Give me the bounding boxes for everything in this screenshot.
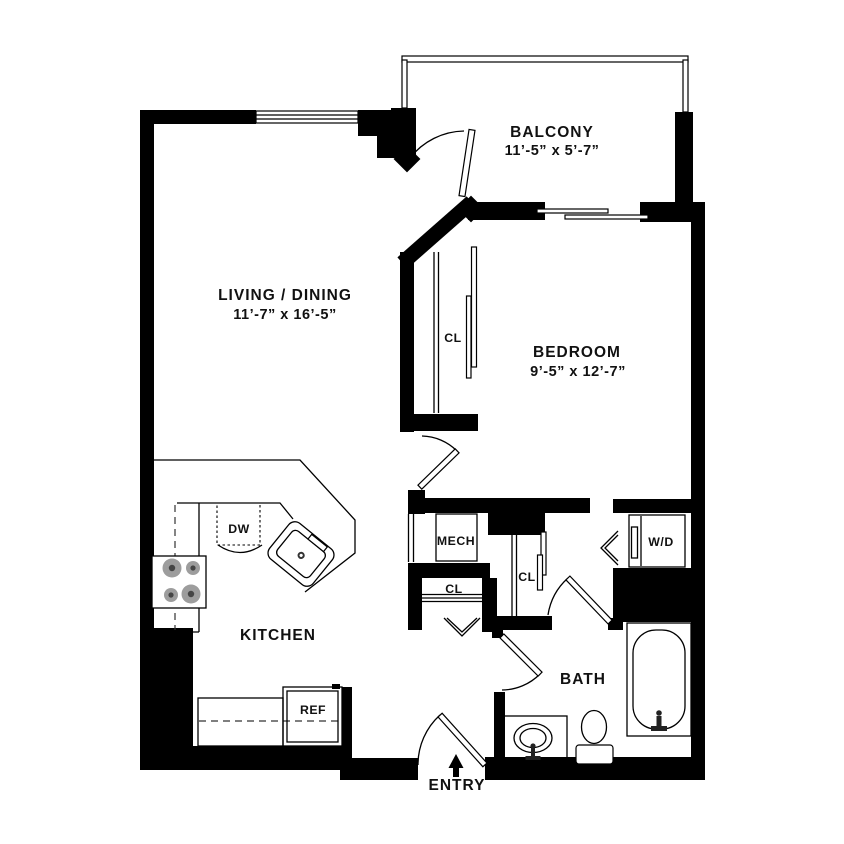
floorplan-svg: BALCONY 11’-5” x 5’-7” LIVING / DINING 1… [0,0,844,844]
wall-wd-north [613,499,705,513]
balcony-railing [402,56,688,112]
floorplan-canvas: BALCONY 11’-5” x 5’-7” LIVING / DINING 1… [0,0,844,844]
sink-faucet-icon [530,743,535,748]
wall-chase-mid [488,498,545,535]
hall-closet-label: CL [445,582,462,596]
wall-bedroom-north-east [640,202,705,222]
balcony-dims: 11’-5” x 5’-7” [505,143,600,159]
mech-door [409,514,414,562]
balcony-label: BALCONY [510,124,594,141]
wall-north-living [140,110,256,124]
wall-closet-south [400,414,478,431]
mech-label: MECH [437,534,475,548]
bedroom-dims: 9’-5” x 12’-7” [530,364,626,380]
washer-dryer-label: W/D [648,535,673,549]
wall-diagonal [408,207,466,258]
hall-closet-bifold-door [444,618,480,636]
entry-arrow-icon [449,754,464,777]
tub-faucet-icon [656,710,662,716]
entry-label: ENTRY [429,777,486,794]
linen-closet-label: CL [518,570,535,584]
refrigerator-label: REF [300,703,326,717]
wall-bedroom-north-west [468,202,545,220]
dishwasher-front-arc [218,545,262,553]
wall-bath-west [494,692,505,758]
living-dining-dims: 11’-7” x 16’-5” [233,307,336,323]
bedroom-closet-shelves [434,247,477,413]
kitchen-label: KITCHEN [240,627,316,644]
stove [152,556,206,608]
wall-closet-west [400,252,414,432]
bath-upper-door [548,576,612,624]
living-window [256,111,358,123]
entry-door [418,713,487,766]
sliding-door-panel [472,247,477,367]
kitchen-sink [265,519,337,590]
bath-fixtures [502,623,691,764]
balcony-door [410,129,475,196]
bedroom-window [537,209,648,219]
dishwasher-label: DW [228,522,250,536]
bathtub [627,623,691,736]
wall-south-kitchen [140,746,352,770]
sliding-door-panel [538,555,543,590]
closet-details [409,247,547,616]
bedroom-label: BEDROOM [533,344,621,361]
wall-hallcl-east [482,578,497,632]
washer-dryer-bifold-door [601,531,618,565]
bedroom-closet-label: CL [444,331,461,345]
wall-east [691,202,705,780]
living-dining-label: LIVING / DINING [218,287,352,304]
wall-chase-bath [613,568,691,622]
bathroom-sink [502,716,567,762]
wall-stub-ref [342,687,352,770]
wall-balcony-pier-right [675,112,693,205]
wall-hallcl-north [408,563,490,578]
walls [140,108,705,780]
wall-balcony-pier-left [391,108,416,152]
bath-label: BATH [560,671,606,688]
sliding-door-panel [467,296,472,378]
toilet [576,711,613,765]
bath-lower-door [500,634,542,690]
bedroom-door [418,436,459,489]
